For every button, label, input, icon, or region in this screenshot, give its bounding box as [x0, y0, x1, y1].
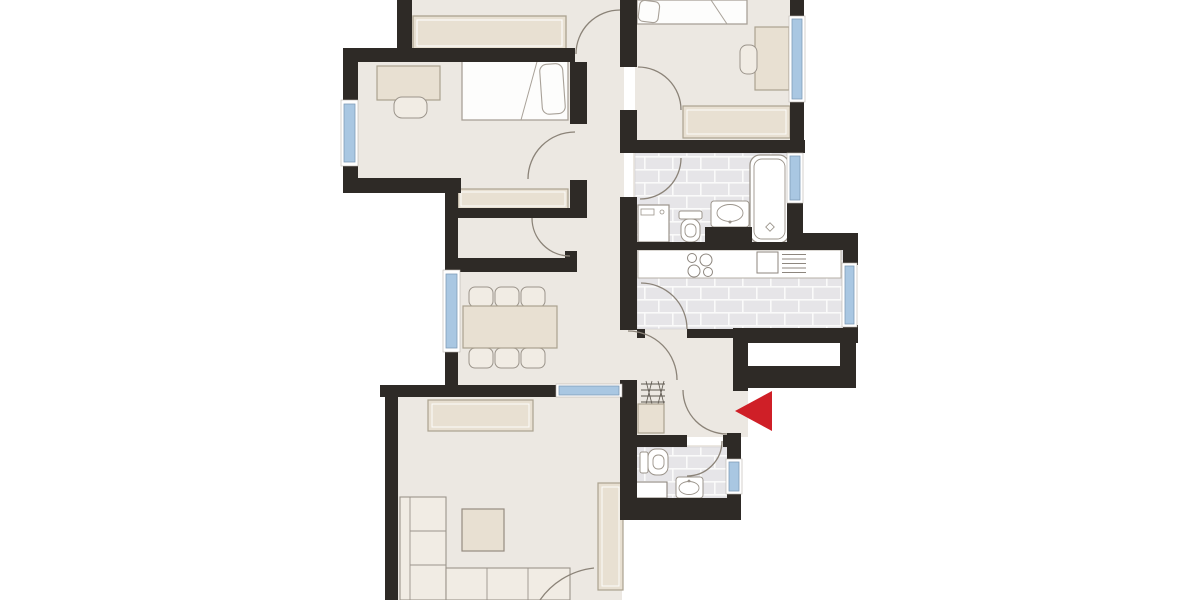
floor-plan	[0, 0, 1200, 600]
chair-room-top-right-part-0	[740, 45, 757, 74]
kitchen-sink-part-0	[757, 252, 778, 273]
wall-segment-16	[620, 140, 805, 153]
chair-bedroom-left	[394, 97, 427, 118]
sink-bathroom-part-2	[729, 221, 732, 224]
wall-segment-38	[620, 498, 741, 520]
wall-segment-27	[705, 227, 752, 243]
washing-machine-part-0	[638, 205, 669, 242]
bed-room-top-right-part-2	[638, 0, 660, 23]
wall-segment-20	[790, 0, 804, 18]
dining-chairs-part-3	[469, 348, 493, 368]
chair-room-top-right	[740, 45, 757, 74]
wall-segment-14	[620, 0, 637, 67]
wall-segment-18	[620, 242, 637, 330]
bed-bedroom-left	[462, 58, 568, 120]
toilet-wc-part-1	[648, 449, 668, 475]
wardrobe-bedroom-left	[458, 189, 568, 209]
dining-table	[463, 306, 557, 348]
window-wc-glass	[729, 462, 739, 491]
desk-bedroom-left	[377, 66, 440, 100]
sofa-part-1	[446, 568, 570, 600]
wall-segment-4	[343, 178, 461, 193]
window-bedroom-left-glass	[344, 104, 355, 162]
wall-segment-30	[733, 328, 858, 343]
toilet-wc	[640, 449, 668, 475]
wall-segment-36	[633, 435, 687, 447]
wall-segment-9	[455, 208, 577, 218]
toilet-wc-part-0	[640, 452, 648, 473]
desk-room-top-right-part-0	[755, 27, 789, 90]
window-kitchen-glass	[845, 266, 854, 324]
wall-segment-23	[787, 233, 858, 250]
bed-bedroom-left-part-2	[539, 63, 565, 114]
wall-segment-37	[723, 435, 731, 447]
wall-segment-1	[343, 48, 575, 62]
wall-segment-26	[637, 242, 790, 250]
sideboard-living-part-0	[428, 400, 533, 431]
sideboard-room-top-right-part-0	[683, 106, 790, 138]
wall-segment-15	[620, 110, 637, 143]
wall-segment-5	[445, 190, 458, 270]
dining-chairs-part-2	[521, 287, 545, 307]
sideboard-room-top-right	[683, 106, 790, 138]
shelf-wc-part-0	[635, 482, 667, 498]
dining-chairs-part-5	[521, 348, 545, 368]
shelf-wc	[635, 482, 667, 498]
chair-bedroom-left-part-0	[394, 97, 427, 118]
window-room-top-right	[789, 16, 805, 102]
window-bathroom-glass	[790, 156, 800, 200]
dining-table-part-0	[463, 306, 557, 348]
desk-bedroom-left-part-0	[377, 66, 440, 100]
cabinet-living	[598, 483, 623, 590]
wall-segment-8	[385, 385, 398, 600]
wardrobe-top-room-part-0	[413, 16, 566, 50]
window-living-transom	[556, 384, 622, 397]
window-kitchen	[842, 263, 857, 327]
desk-room-top-right	[755, 27, 789, 90]
wall-segment-0	[397, 0, 412, 50]
dining-chairs-part-1	[495, 287, 519, 307]
sink-wc-part-2	[688, 480, 691, 483]
coffee-table-part-0	[462, 509, 504, 551]
window-dining	[443, 270, 460, 352]
wall-segment-33	[840, 343, 856, 368]
window-dining-glass	[446, 274, 457, 348]
wall-segment-12	[570, 62, 587, 124]
washing-machine	[638, 205, 669, 242]
wall-segment-6	[445, 352, 458, 388]
sofa-part-0	[400, 497, 446, 600]
toilet-bathroom-part-0	[679, 211, 702, 219]
wardrobe-top-room	[413, 16, 566, 50]
kitchen-counter	[638, 250, 841, 278]
kitchen-counter-part-0	[638, 250, 841, 278]
cabinet-entrance	[638, 404, 664, 433]
wall-segment-2	[343, 48, 358, 103]
bed-room-top-right	[637, 0, 747, 24]
wall-segment-10	[458, 258, 568, 272]
toilet-bathroom-part-1	[681, 219, 700, 242]
wall-segment-31	[733, 343, 748, 391]
wall-segment-21	[790, 100, 804, 142]
wall-segment-29	[687, 329, 733, 338]
floor-storage-nook	[456, 216, 568, 260]
window-wc	[726, 459, 742, 494]
window-bedroom-left	[341, 100, 358, 166]
cabinet-entrance-part-0	[638, 404, 664, 433]
bathtub-part-0	[750, 155, 789, 243]
wall-segment-32	[748, 366, 856, 388]
sideboard-living	[428, 400, 533, 431]
kitchen-sink	[757, 252, 778, 273]
bathtub	[750, 155, 789, 243]
sink-bathroom	[711, 201, 749, 227]
window-bathroom	[787, 153, 803, 203]
toilet-bathroom	[679, 211, 702, 242]
floor-plan-canvas	[0, 0, 1200, 600]
wall-segment-17	[620, 197, 637, 243]
sink-wc	[676, 477, 703, 498]
dining-chairs-part-0	[469, 287, 493, 307]
window-room-top-right-glass	[792, 19, 802, 99]
wall-segment-13	[570, 180, 587, 218]
window-living-transom-glass	[559, 386, 619, 395]
wall-segment-11	[565, 251, 577, 272]
coffee-table	[462, 509, 504, 551]
dining-chairs-part-4	[495, 348, 519, 368]
